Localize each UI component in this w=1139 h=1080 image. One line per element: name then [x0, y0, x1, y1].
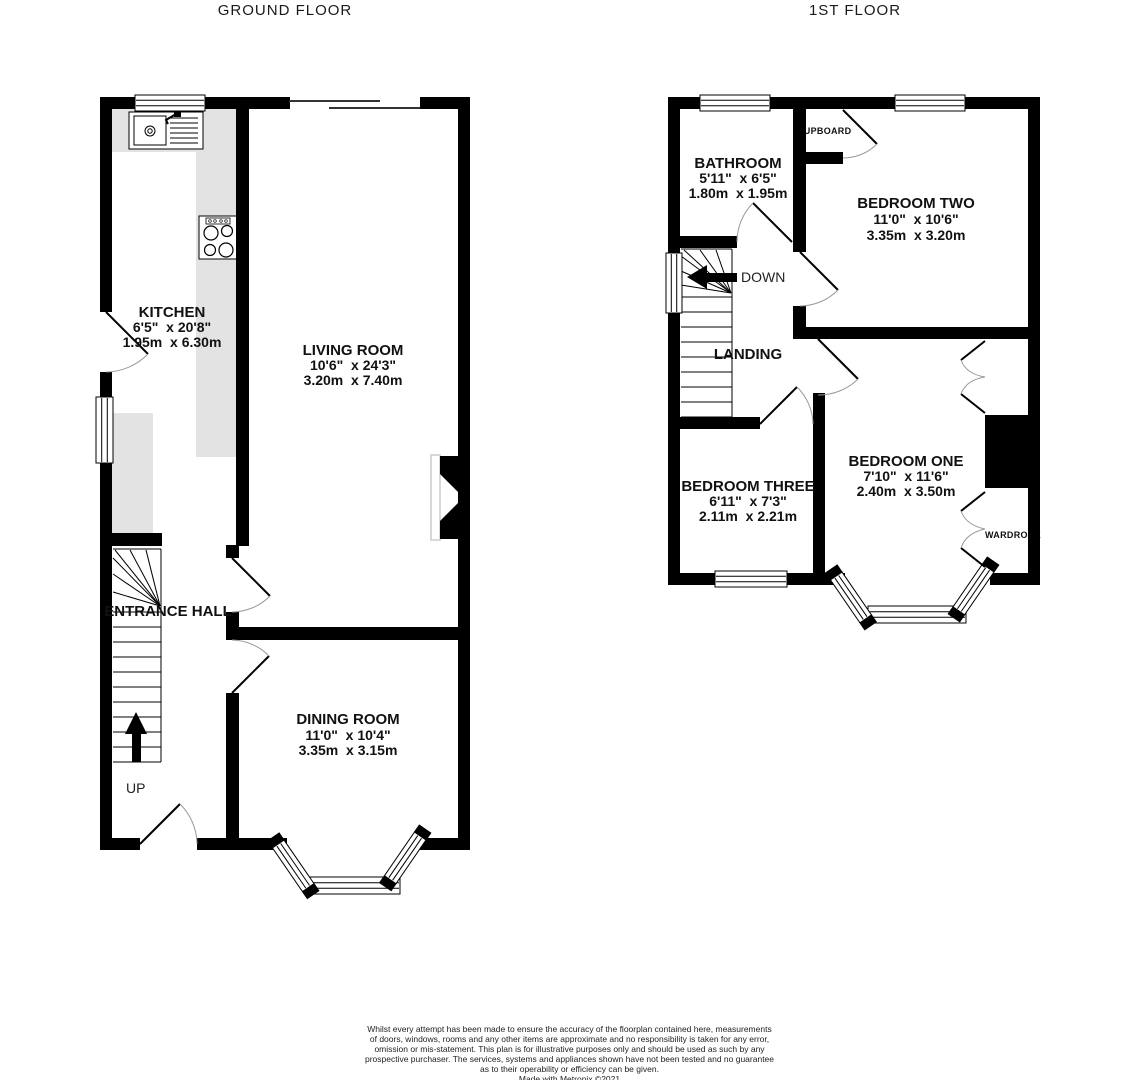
- fireplace: [431, 455, 458, 540]
- bay-window-ground: [267, 824, 432, 899]
- kitchen-dims-imperial: 6'5" x 20'8": [133, 319, 211, 335]
- kitchen-dims-metric: 1.95m x 6.30m: [123, 334, 222, 350]
- living-room-door: [232, 558, 270, 596]
- front-door: [140, 804, 180, 844]
- up-label: UP: [126, 780, 145, 796]
- landing-label: LANDING: [714, 346, 782, 363]
- disclaimer-line: as to their operability or efficiency ca…: [0, 1064, 1139, 1074]
- bathroom-door: [753, 203, 792, 242]
- disclaimer-line: Made with Metropix ©2021: [0, 1074, 1139, 1080]
- up-arrow-icon: [125, 712, 147, 762]
- bedroom-two-label: BEDROOM TWO: [857, 195, 975, 212]
- disclaimer: Whilst every attempt has been made to en…: [0, 1024, 1139, 1080]
- down-label: DOWN: [741, 269, 785, 285]
- first-floor-plan: CUPBOARD WARDROBE: [666, 95, 1041, 630]
- bedroom-three-door: [760, 387, 797, 424]
- ground-floor-walls: [100, 97, 470, 850]
- bedroom-two-door: [800, 252, 838, 290]
- bedroom-three-dims-metric: 2.11m x 2.21m: [699, 508, 797, 524]
- wardrobe-doors: [961, 341, 985, 567]
- bedroom-two-dims-imperial: 11'0" x 10'6": [873, 211, 958, 227]
- dining-room-label: DINING ROOM: [296, 711, 399, 728]
- entrance-hall-label: ENTRANCE HALL: [104, 603, 232, 620]
- bedroom-one-dims-imperial: 7'10" x 11'6": [863, 468, 948, 484]
- bedroom-two-dims-metric: 3.35m x 3.20m: [867, 227, 966, 243]
- down-arrow-icon: [687, 265, 737, 289]
- bathroom-dims-imperial: 5'11" x 6'5": [699, 170, 777, 186]
- hob-icon: [199, 216, 237, 259]
- floorplan-page: GROUND FLOOR 1ST FLOOR: [0, 0, 1139, 1080]
- dining-room-dims-imperial: 11'0" x 10'4": [305, 727, 390, 743]
- bay-window-first: [825, 556, 1000, 630]
- bathroom-dims-metric: 1.80m x 1.95m: [689, 185, 788, 201]
- chimney-breast: [985, 415, 1028, 488]
- floorplan-canvas: KITCHEN 6'5" x 20'8" 1.95m x 6.30m LIVIN…: [0, 0, 1139, 1080]
- living-room-dims-metric: 3.20m x 7.40m: [304, 372, 403, 388]
- dining-room-door: [232, 656, 269, 693]
- bedroom-one-dims-metric: 2.40m x 3.50m: [857, 483, 956, 499]
- ground-floor-plan: KITCHEN 6'5" x 20'8" 1.95m x 6.30m LIVIN…: [96, 95, 470, 899]
- kitchen-sink-icon: [129, 112, 203, 149]
- disclaimer-line: Whilst every attempt has been made to en…: [0, 1024, 1139, 1034]
- disclaimer-line: prospective purchaser. The services, sys…: [0, 1054, 1139, 1064]
- living-room-dims-imperial: 10'6" x 24'3": [310, 357, 396, 373]
- bedroom-one-door: [818, 339, 858, 379]
- bedroom-three-dims-imperial: 6'11" x 7'3": [709, 493, 787, 509]
- disclaimer-line: omission or mis-statement. This plan is …: [0, 1044, 1139, 1054]
- dining-room-dims-metric: 3.35m x 3.15m: [299, 742, 398, 758]
- disclaimer-line: of doors, windows, rooms and any other i…: [0, 1034, 1139, 1044]
